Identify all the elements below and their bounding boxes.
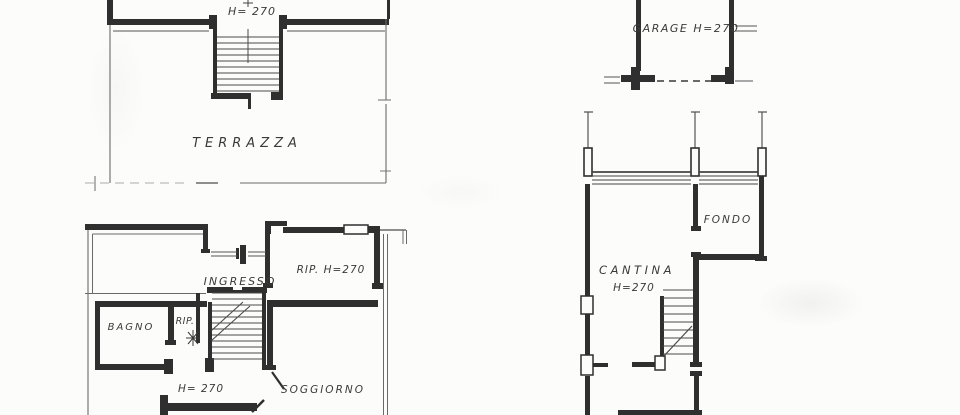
garage-label: GARAGE H=270 xyxy=(633,22,740,35)
basement-riser-lines xyxy=(584,112,767,149)
basement-staircase xyxy=(663,290,693,357)
floor-plan-scan: H= 270 TERRAZZA GARAGE H=270 xyxy=(0,0,960,415)
rip-small-label: RIP. xyxy=(176,316,195,327)
fondo-label: FONDO xyxy=(704,214,753,226)
basement-height-label: H=270 xyxy=(613,282,655,294)
window-band xyxy=(592,172,758,184)
cantina-label: CANTINA xyxy=(599,263,675,277)
attic-staircase xyxy=(217,29,279,91)
window-symbol xyxy=(344,225,368,234)
rip-large-label: RIP. H=270 xyxy=(297,264,366,276)
asterisk-mark xyxy=(186,330,200,346)
main-height-label: H= 270 xyxy=(178,383,224,395)
bagno-label: BAGNO xyxy=(108,322,155,333)
terrazza-label: TERRAZZA xyxy=(192,136,302,151)
garage-plan: GARAGE H=270 xyxy=(604,0,757,90)
soggiorno-label: SOGGIORNO xyxy=(281,384,365,396)
main-floor-plan: INGRESSO RIP. H=270 BAGNO RIP. H= 270 SO… xyxy=(85,221,407,415)
terrace-parapet xyxy=(85,19,391,191)
attic-height-label: H= 270 xyxy=(228,5,276,18)
plan-drawing: H= 270 TERRAZZA GARAGE H=270 xyxy=(0,0,960,415)
attic-plan: H= 270 TERRAZZA xyxy=(85,0,391,191)
ingresso-label: INGRESSO xyxy=(204,275,277,288)
basement-walls xyxy=(585,176,767,415)
main-staircase xyxy=(211,293,262,359)
basement-plan: FONDO CANTINA H=270 xyxy=(581,112,767,415)
garage-walls xyxy=(621,0,734,90)
